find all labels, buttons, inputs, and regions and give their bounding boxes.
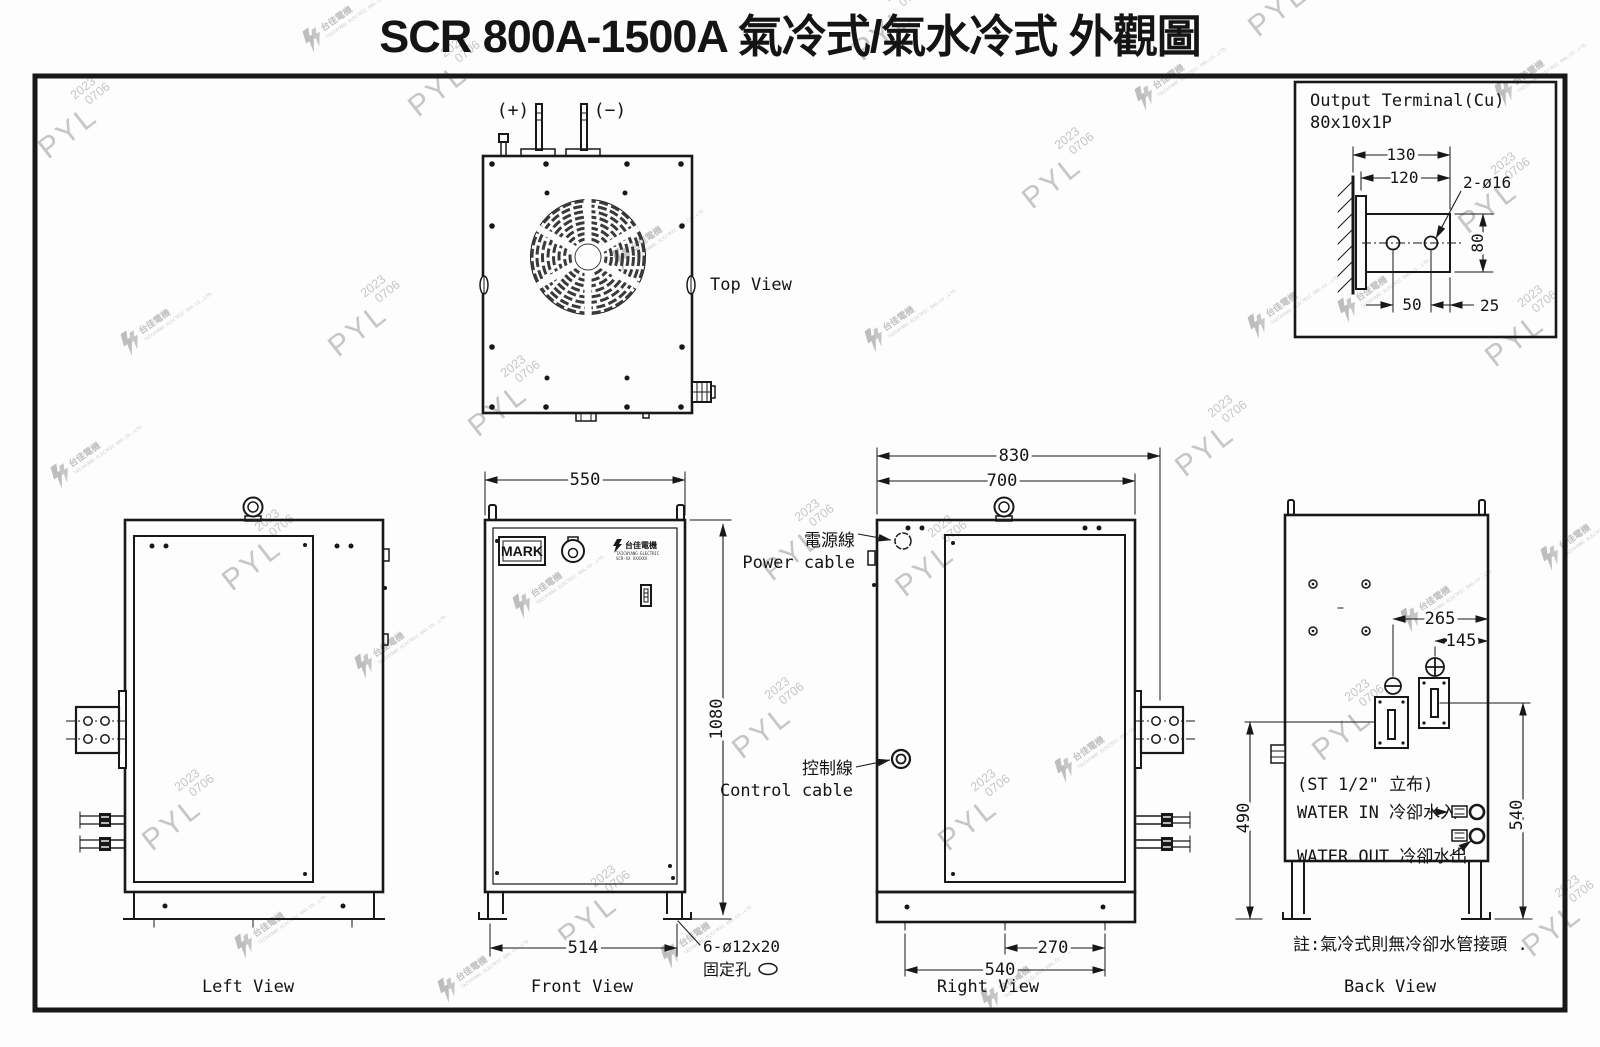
plus-symbol	[1426, 658, 1444, 676]
watermark	[1159, 387, 1263, 483]
drawing-page: PYL 2023 0706 台佳電機 TAICHYANG ELECTRIC EN…	[0, 0, 1600, 1047]
watermark	[1232, 0, 1336, 44]
water-fitting	[1137, 836, 1190, 852]
dim-514: 514	[568, 938, 599, 958]
st-note: (ST 1/2" 立布)	[1297, 775, 1433, 795]
hole-callout: 2-ø16	[1463, 173, 1511, 192]
water-outlet-fitting	[1452, 829, 1484, 843]
water-inlet-fitting	[1452, 805, 1484, 819]
fixing-holes-label: 6-ø12x20	[703, 937, 780, 956]
water-fitting	[80, 836, 125, 852]
watermark	[452, 347, 556, 443]
dim-830: 830	[999, 446, 1030, 466]
back-view-label: Back View	[1344, 977, 1437, 997]
watermark	[879, 507, 983, 603]
control-cable-entry	[892, 750, 910, 768]
watermark	[22, 69, 126, 165]
eyebolt-icon	[995, 498, 1014, 522]
terminal-bracket	[1356, 196, 1366, 289]
power-cable-entry	[895, 533, 911, 549]
power-cable-label-zh: 電源線	[804, 531, 855, 551]
back-view: 265 145 490 540	[1234, 500, 1532, 997]
cooling-note: 註:氣冷式則無冷卻水管接頭 .	[1293, 935, 1528, 955]
busbar-plus	[536, 104, 542, 150]
door-handle	[641, 585, 651, 606]
legs	[1283, 861, 1490, 919]
water-in-label: WATER IN 冷卻水入	[1297, 803, 1457, 823]
edge-clip	[868, 551, 875, 565]
dim-540-back: 540	[1507, 800, 1527, 831]
detail-title-2: 80x10x1P	[1310, 113, 1392, 133]
base-plinth	[877, 892, 1135, 930]
cable-gland	[1271, 745, 1285, 763]
fan-icon	[531, 199, 646, 315]
terminal-plate-neg	[1375, 697, 1408, 748]
eyebolt-icon	[244, 498, 263, 522]
water-fitting	[1137, 812, 1190, 828]
front-inner	[493, 528, 677, 884]
lifting-lug	[677, 505, 684, 520]
output-terminal-bracket	[1135, 691, 1196, 768]
mark-label: MARK	[501, 543, 543, 559]
dim-120: 120	[1390, 168, 1419, 187]
slot-hole-symbol	[759, 964, 777, 975]
watermark	[351, 600, 450, 679]
page-title: SCR 800A-1500A 氣冷式/氣水冷式 外觀圖	[379, 11, 1201, 62]
watermark	[1006, 119, 1110, 215]
watermark	[126, 761, 230, 857]
nameplate-zh: 台佳電機	[625, 540, 657, 550]
watermark	[1442, 144, 1546, 240]
dim-1080: 1080	[707, 699, 727, 740]
lifting-lug	[1479, 500, 1485, 515]
watermark	[117, 277, 216, 356]
dim-80: 80	[1468, 233, 1487, 252]
dim-270: 270	[1038, 938, 1069, 958]
left-view-label: Left View	[202, 977, 295, 997]
watermark	[1469, 277, 1573, 373]
watermark	[657, 890, 756, 969]
front-body	[485, 520, 685, 892]
fixing-holes-label-2: 固定孔	[703, 960, 751, 979]
dim-490: 490	[1234, 803, 1254, 834]
base-plinth	[124, 892, 384, 927]
front-view-label: Front View	[531, 977, 634, 997]
plus-terminal-label: (+)	[497, 100, 530, 121]
power-cable-label-en: Power cable	[742, 553, 855, 573]
small-terminal	[499, 134, 508, 142]
watermark	[1491, 28, 1590, 107]
top-view-label: Top View	[710, 275, 793, 295]
dim-25: 25	[1480, 296, 1499, 315]
lifting-lug	[1288, 500, 1294, 515]
control-cable-label-en: Control cable	[720, 781, 853, 801]
busbar-minus	[581, 104, 587, 150]
water-fitting	[80, 812, 125, 828]
water-out-label: WATER OUT 冷卻水出	[1297, 847, 1467, 867]
dim-265: 265	[1425, 609, 1456, 629]
control-cable-label-zh: 控制線	[802, 759, 853, 779]
watermark	[47, 410, 146, 489]
minus-terminal-label: (−)	[594, 100, 627, 121]
mark-plate: MARK	[499, 537, 545, 565]
dim-130: 130	[1387, 145, 1416, 164]
watermark	[312, 267, 416, 363]
nameplate: 台佳電機 TAICHYANG ELECTRIC SCR-XX XXXXXX	[613, 539, 660, 561]
right-view-label: Right View	[937, 977, 1040, 997]
watermark	[1537, 492, 1600, 571]
minus-symbol	[1385, 678, 1401, 694]
detail-title-1: Output Terminal(Cu)	[1310, 91, 1504, 111]
watermark	[434, 924, 533, 1003]
dim-550: 550	[570, 470, 601, 490]
nameplate-line2: SCR-XX XXXXXX	[616, 556, 648, 561]
watermark	[861, 274, 960, 353]
cable-gland	[692, 382, 715, 402]
watermark	[716, 669, 820, 765]
lifting-lug	[489, 505, 496, 520]
door-lock-icon	[562, 537, 584, 562]
dim-700: 700	[987, 471, 1018, 491]
output-terminal-bracket	[66, 691, 128, 768]
dim-50: 50	[1402, 295, 1421, 314]
screw-dots	[150, 543, 354, 909]
screw-holes	[1309, 580, 1370, 635]
dim-145: 145	[1446, 631, 1477, 651]
watermark	[922, 761, 1026, 857]
